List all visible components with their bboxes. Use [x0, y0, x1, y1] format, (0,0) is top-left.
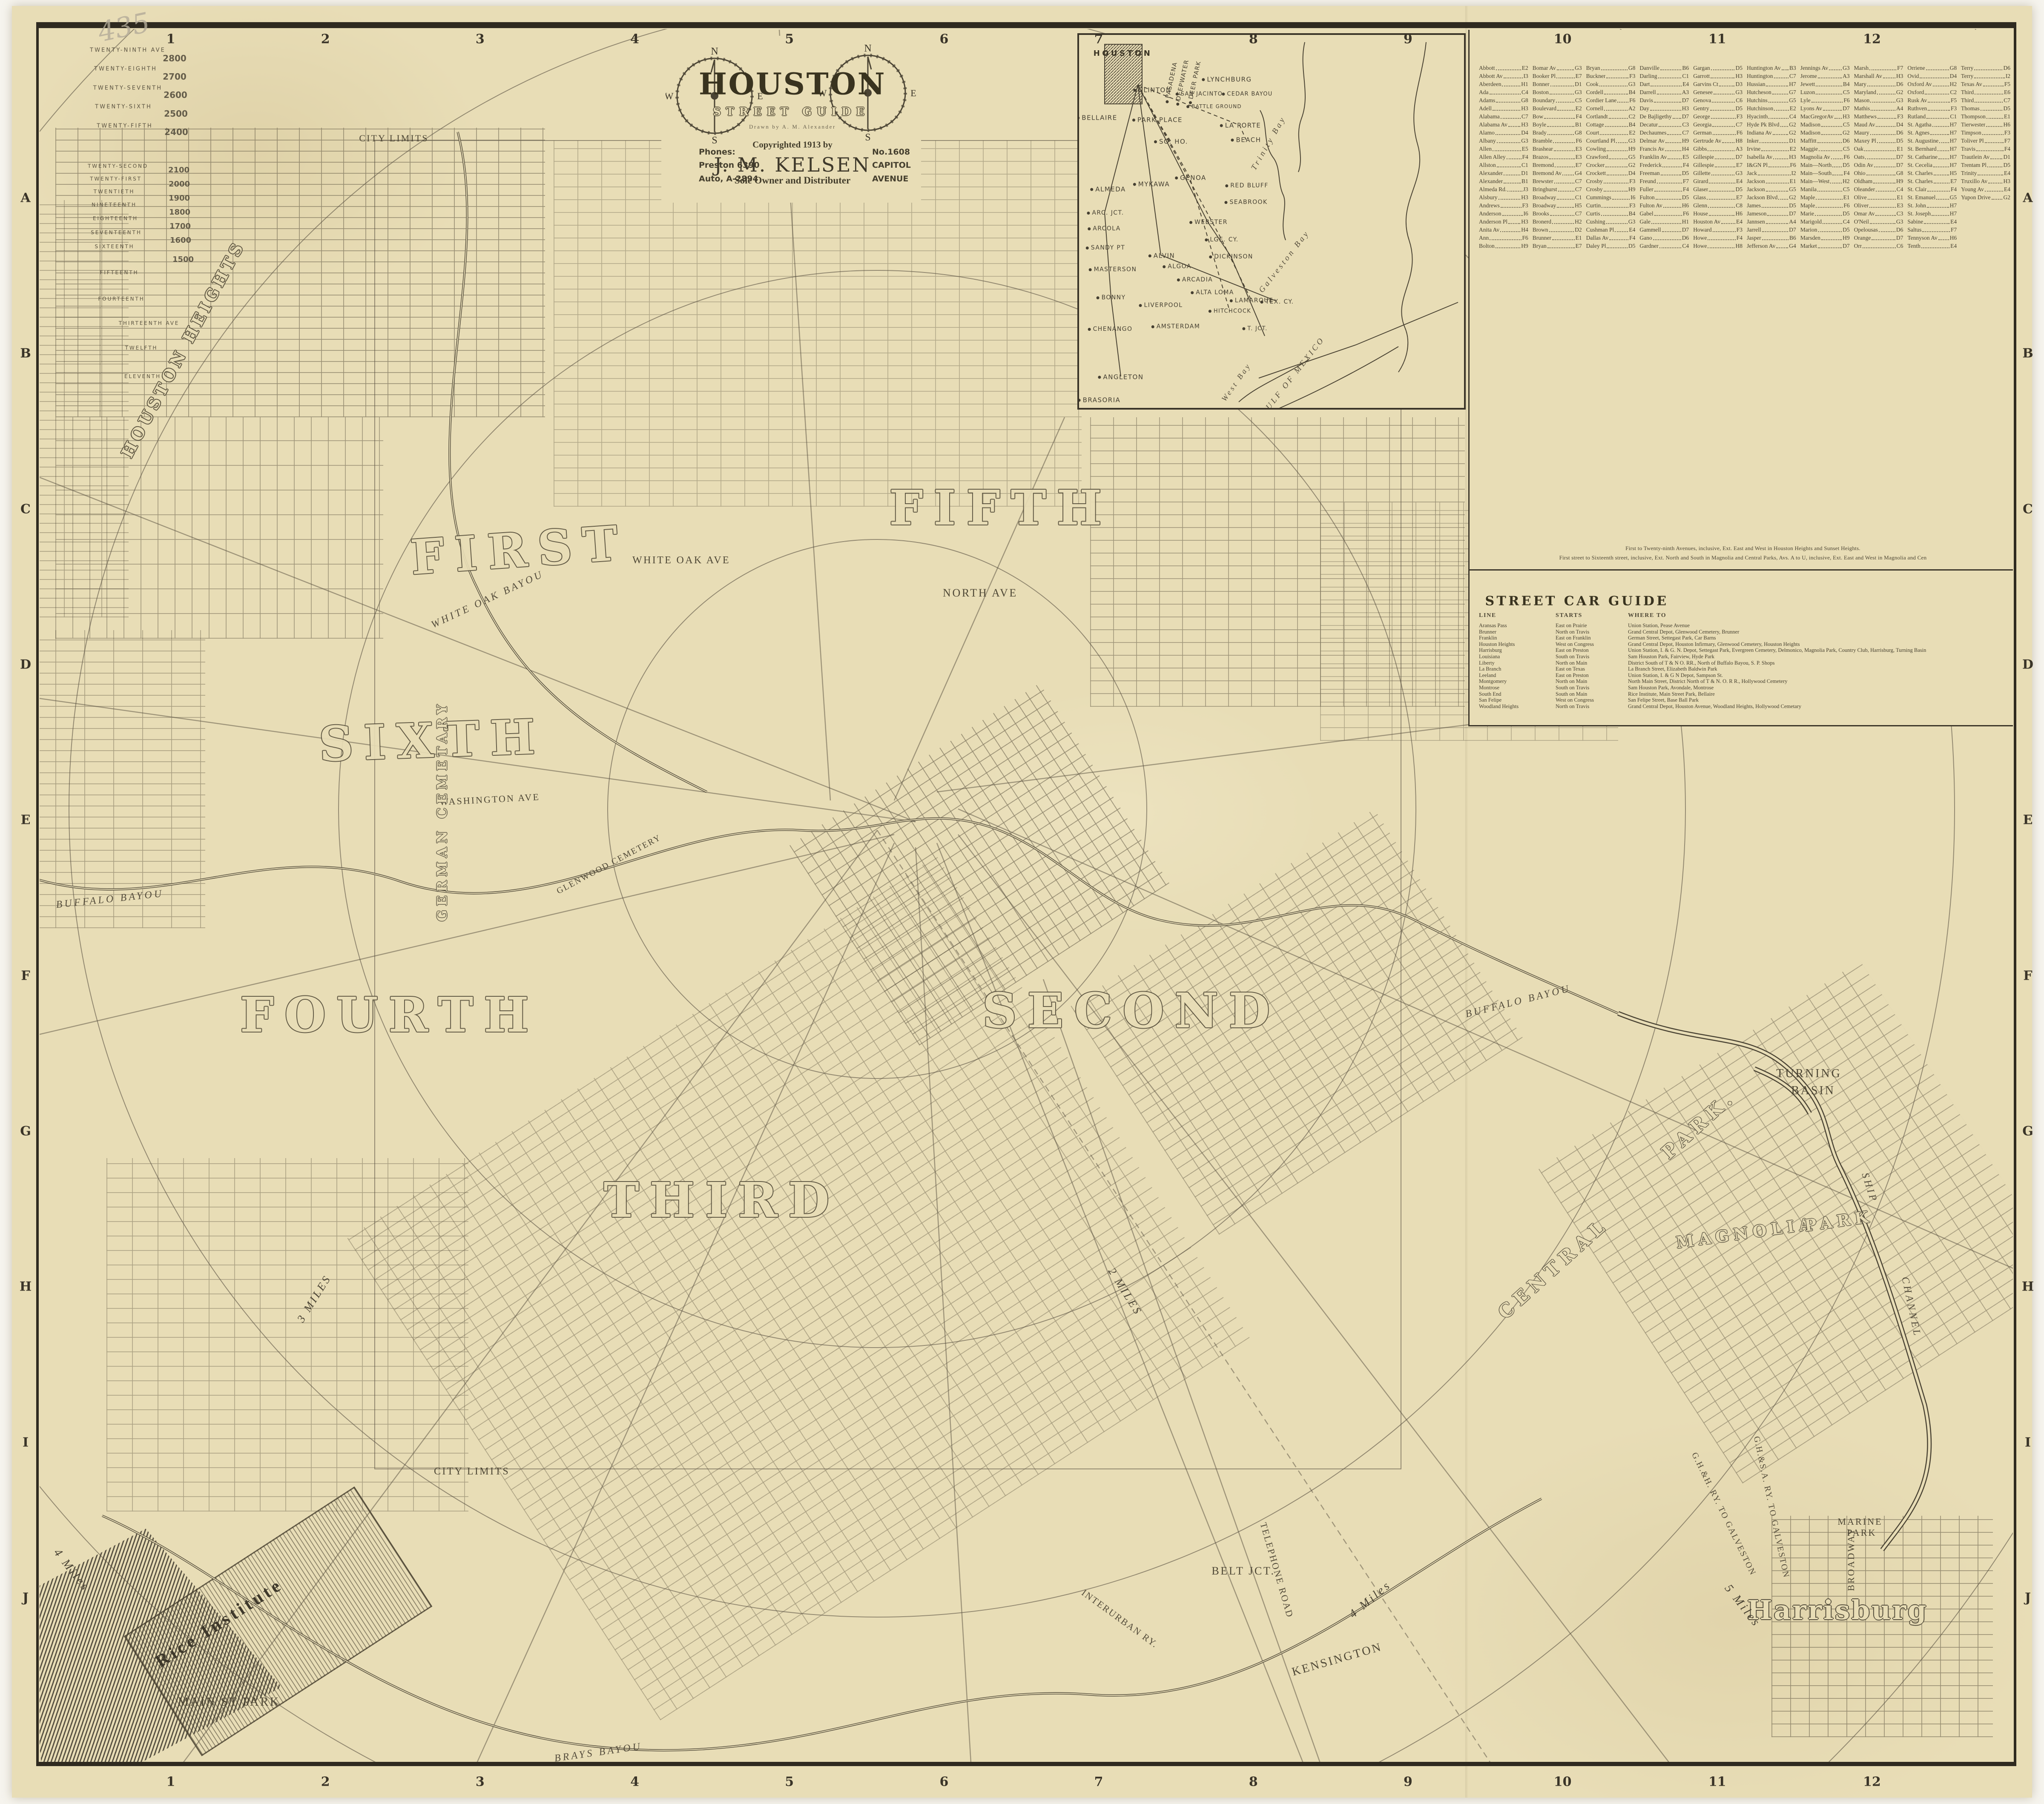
index-grid-ref: G8: [1521, 96, 1528, 104]
index-grid-ref: B6: [1789, 234, 1796, 242]
grid-row-label: I: [23, 1435, 29, 1450]
index-entry: CummingsI6: [1586, 193, 1636, 201]
map-label: MARINE: [1837, 1517, 1882, 1526]
block-number: 2100: [168, 166, 189, 174]
index-entry: Cordier LaneF6: [1586, 96, 1636, 104]
leader-dots: [1938, 239, 1949, 240]
leader-dots: [1927, 191, 1950, 192]
leader-dots: [1877, 118, 1896, 119]
leader-dots: [1550, 94, 1574, 95]
leader-dots: [1496, 69, 1521, 70]
index-street-name: Saltus: [1907, 226, 1921, 234]
index-grid-ref: D5: [1843, 209, 1850, 218]
index-grid-ref: F6: [1790, 161, 1796, 169]
index-street-name: Glass: [1693, 193, 1706, 201]
index-entry: HutchesonG7: [1747, 88, 1796, 96]
index-entry: BrewsterC7: [1533, 177, 1582, 185]
leader-dots: [1554, 183, 1574, 184]
leader-dots: [1934, 175, 1949, 175]
index-grid-ref: F4: [1683, 161, 1689, 169]
leader-dots: [1925, 94, 1949, 95]
carguide-whereto: Grand Central Depot, Houston Avenue, Woo…: [1628, 703, 2011, 710]
leader-dots: [1599, 86, 1628, 86]
leader-dots: [1604, 183, 1629, 184]
map-label: BROADWAY: [1846, 1527, 1856, 1591]
inset-town-label: ANGLETON: [1098, 374, 1143, 381]
leader-dots: [1830, 183, 1842, 184]
index-street-name: Oleander: [1854, 185, 1875, 193]
leader-dots: [1553, 142, 1575, 143]
index-street-name: Main—North: [1800, 161, 1832, 169]
index-street-name: Maud Av: [1854, 120, 1875, 129]
index-entry: Rusk AvF5: [1907, 96, 1957, 104]
index-street-name: Ruthven: [1907, 104, 1927, 112]
index-entry: BryanE7: [1533, 242, 1582, 250]
leader-dots: [1933, 86, 1949, 86]
index-street-name: Timpson: [1961, 129, 1981, 137]
inset-town-label: ARCOLA: [1088, 226, 1121, 232]
grid-row-label: G: [20, 1124, 31, 1139]
index-street-name: Darrell: [1639, 88, 1656, 96]
leader-dots: [1874, 166, 1895, 167]
index-entry: MaggieC5: [1800, 145, 1850, 153]
index-entry: Maud AvD4: [1854, 120, 1903, 129]
carguide-row: Houston HeightsWest on CongressGrand Cen…: [1479, 641, 2011, 648]
index-street-name: Opelousas: [1854, 226, 1878, 234]
leader-dots: [1552, 239, 1575, 240]
block-number: 2700: [163, 72, 187, 81]
leader-dots: [1557, 199, 1574, 200]
index-street-name: Courtland Pl: [1586, 137, 1616, 145]
index-entry: Toliver PlF7: [1961, 137, 2010, 145]
leader-dots: [1501, 207, 1522, 208]
index-street-name: House: [1693, 209, 1708, 218]
index-grid-ref: G5: [1789, 96, 1796, 104]
index-grid-ref: G3: [1521, 137, 1528, 145]
street-car-guide-header: LINE STARTS WHERE TO: [1479, 612, 2007, 619]
index-grid-ref: G3: [1628, 80, 1636, 88]
index-grid-ref: H7: [1950, 129, 1957, 137]
index-grid-ref: D4: [1628, 169, 1636, 177]
leader-dots: [1497, 166, 1521, 167]
index-street-name: I&GN Pl: [1747, 161, 1768, 169]
index-entry: St. JohnH7: [1907, 201, 1957, 209]
index-street-name: Tenth: [1907, 242, 1921, 250]
header-whereto: WHERE TO: [1628, 612, 2007, 619]
index-street-name: Bremond Av: [1533, 169, 1562, 177]
inset-town-label: T. JCT.: [1242, 326, 1267, 332]
index-grid-ref: C7: [1575, 209, 1582, 218]
grid-column-label: 11: [1708, 1775, 1726, 1790]
index-entry: GabelF6: [1639, 209, 1689, 218]
index-entry: Abbott AvI3: [1479, 72, 1528, 80]
index-street-name: St. Clair: [1907, 185, 1926, 193]
index-street-name: Trinity: [1961, 169, 1977, 177]
index-street-name: Adams: [1479, 96, 1495, 104]
leader-dots: [1657, 183, 1682, 184]
index-entry: De BajligethyD7: [1639, 112, 1689, 120]
street-car-guide-panel: STREET CAR GUIDE LINE STARTS WHERE TO Ar…: [1468, 571, 2015, 726]
index-grid-ref: G8: [1575, 129, 1582, 137]
index-street-name: Irvine: [1747, 145, 1760, 153]
index-street-name: Crockett: [1586, 169, 1606, 177]
leader-dots: [1549, 231, 1574, 232]
leader-dots: [1549, 158, 1574, 159]
leader-dots: [1762, 239, 1788, 240]
leader-dots: [1504, 77, 1523, 78]
carguide-whereto: San Felipe Street, Base Ball Park: [1628, 697, 2011, 703]
index-grid-ref: F6: [1683, 209, 1689, 218]
index-entry: BucknerF3: [1586, 72, 1636, 80]
leader-dots: [1780, 126, 1788, 127]
index-street-name: Brown: [1533, 226, 1548, 234]
leader-dots: [1605, 126, 1628, 127]
index-street-name: Jackson: [1747, 185, 1765, 193]
main-map: FIRSTFIFTHSIXTHFOURTHSECONDTHIRDHOUSTON …: [0, 0, 2044, 1804]
index-street-name: Texas Av: [1961, 80, 1982, 88]
index-street-name: Main—South: [1800, 169, 1832, 177]
index-grid-ref: F6: [1629, 96, 1635, 104]
index-entry: BoundaryC5: [1533, 96, 1582, 104]
index-entry: Odin AvD7: [1854, 161, 1903, 169]
index-entry: Jackson BlvdG2: [1747, 193, 1796, 201]
inset-town-label: ALGOA: [1163, 264, 1191, 270]
leader-dots: [1865, 158, 1895, 159]
index-grid-ref: D5: [1682, 169, 1689, 177]
leader-dots: [1932, 215, 1949, 216]
index-grid-ref: E3: [1897, 201, 1903, 209]
inset-town-label: DICKINSON: [1209, 254, 1253, 260]
carguide-starts: South on Main: [1556, 691, 1628, 697]
index-grid-ref: G3: [1735, 88, 1743, 96]
index-street-name: Freeman: [1639, 169, 1659, 177]
block-number: 1700: [169, 223, 191, 230]
index-entry: DanvilleB6: [1639, 64, 1689, 72]
leader-dots: [1556, 102, 1574, 103]
index-grid-ref: C7: [2004, 96, 2010, 104]
leader-dots: [1555, 166, 1575, 167]
copyright-line: Copyrighted 1913 by: [752, 140, 833, 150]
leader-dots: [1986, 126, 2002, 127]
leader-dots: [1544, 118, 1575, 119]
index-grid-ref: G3: [1628, 218, 1636, 226]
index-grid-ref: D5: [1789, 201, 1796, 209]
index-grid-ref: D5: [1735, 64, 1743, 72]
index-grid-ref: G2: [1789, 129, 1796, 137]
index-entry: HoweH8: [1693, 242, 1743, 250]
leader-dots: [1604, 94, 1628, 95]
index-street-name: Hutcheson: [1747, 88, 1771, 96]
index-street-name: Gale: [1639, 218, 1650, 226]
carguide-line: La Branch: [1479, 666, 1556, 672]
index-grid-ref: C7: [1522, 112, 1528, 120]
index-grid-ref: F4: [1843, 169, 1849, 177]
index-grid-ref: C7: [1736, 120, 1743, 129]
grid-row-label: E: [21, 813, 31, 828]
index-street-name: Mary: [1854, 80, 1866, 88]
index-entry: CourtE2: [1586, 129, 1636, 137]
index-grid-ref: C5: [1843, 88, 1850, 96]
index-street-name: Boyle: [1533, 120, 1546, 129]
index-entry: MarshF7: [1854, 64, 1903, 72]
index-entry: Lyons AvD7: [1800, 104, 1850, 112]
leader-dots: [1834, 118, 1842, 119]
leader-dots: [1758, 175, 1791, 175]
index-grid-ref: B4: [1843, 80, 1850, 88]
index-grid-ref: C3: [1897, 209, 1903, 218]
block-number: 2500: [164, 109, 188, 118]
index-entry: TrinityE4: [1961, 169, 2010, 177]
carguide-starts: North on Main: [1556, 660, 1628, 666]
index-grid-ref: C6: [1736, 96, 1743, 104]
carguide-line: Franklin: [1479, 635, 1556, 641]
index-grid-ref: C4: [1789, 112, 1796, 120]
grid-column-label: 1: [167, 1775, 175, 1790]
index-entry: JarrellD7: [1747, 226, 1796, 234]
carguide-whereto: La Branch Street, Elizabeth Baldwin Park: [1628, 666, 2011, 672]
index-entry: OliverE3: [1854, 201, 1903, 209]
index-grid-ref: E4: [1950, 218, 1957, 226]
leader-dots: [1550, 86, 1574, 86]
index-grid-ref: G2: [1789, 120, 1796, 129]
leader-dots: [1870, 223, 1895, 224]
index-street-name: Olive: [1854, 193, 1867, 201]
index-grid-ref: G3: [1575, 88, 1582, 96]
avenue-label: SEVENTEENTH: [91, 230, 141, 235]
leader-dots: [1920, 77, 1949, 78]
index-street-name: Luzon: [1800, 88, 1815, 96]
avenue-label: NINETEENTH: [92, 202, 137, 207]
index-street-name: Sabine: [1907, 218, 1923, 226]
index-grid-ref: D5: [2003, 104, 2010, 112]
index-street-name: Maffitt: [1800, 137, 1817, 145]
index-grid-ref: H7: [1950, 209, 1957, 218]
index-entry: TierwesterH6: [1961, 120, 2010, 129]
leader-dots: [1928, 102, 1950, 103]
index-entry: St. BernhardH7: [1907, 145, 1957, 153]
leader-dots: [1607, 175, 1628, 175]
index-grid-ref: E5: [1522, 145, 1528, 153]
index-street-name: Garvins Ct: [1693, 80, 1718, 88]
index-entry: AlexanderD1: [1479, 169, 1528, 177]
leader-dots: [1983, 86, 2004, 86]
carguide-whereto: Rice Institute, Main Street Park, Bellai…: [1628, 691, 2011, 697]
carguide-whereto: Union Station, I. & G N Depot, Sampson S…: [1628, 672, 2011, 679]
index-grid-ref: D6: [1896, 80, 1903, 88]
index-grid-ref: D7: [1682, 112, 1689, 120]
index-entry: BonnerD1: [1533, 80, 1582, 88]
leader-dots: [1607, 247, 1627, 248]
grid-column-label: 12: [1863, 32, 1881, 47]
inset-town-label: ALVIN: [1148, 253, 1175, 259]
leader-dots: [1815, 215, 1842, 216]
index-grid-ref: H3: [1521, 104, 1528, 112]
index-entry: Omar AvC3: [1854, 209, 1903, 218]
leader-dots: [1863, 247, 1895, 248]
index-entry: Houston AvE4: [1693, 218, 1743, 226]
index-street-name: Oats: [1854, 153, 1865, 161]
index-street-name: Dart: [1639, 80, 1650, 88]
leader-dots: [1870, 102, 1895, 103]
leader-dots: [1490, 94, 1521, 95]
index-grid-ref: B1: [1522, 177, 1528, 185]
leader-dots: [1504, 183, 1521, 184]
leader-dots: [1709, 191, 1734, 192]
index-grid-ref: C1: [1682, 72, 1689, 80]
index-grid-ref: H3: [1789, 153, 1796, 161]
index-street-name: Dechaumes: [1639, 129, 1666, 137]
leader-dots: [1871, 110, 1895, 111]
index-grid-ref: H9: [1628, 185, 1636, 193]
index-entry: Bremond AvG4: [1533, 169, 1582, 177]
leader-dots: [1829, 69, 1842, 70]
index-grid-ref: H7: [1950, 201, 1957, 209]
grid-column-label: 11: [1708, 32, 1726, 47]
leader-dots: [1821, 239, 1842, 240]
index-grid-ref: H7: [1950, 153, 1957, 161]
index-grid-ref: G2: [1628, 161, 1636, 169]
index-street-name: Crocker: [1586, 161, 1605, 169]
index-street-name: St. Augustine: [1907, 137, 1938, 145]
leader-dots: [1933, 166, 1949, 167]
index-entry: AndersonI6: [1479, 209, 1528, 218]
leader-dots: [1496, 102, 1520, 103]
index-entry: BoyleB1: [1533, 120, 1582, 129]
index-grid-ref: H7: [1950, 161, 1957, 169]
leader-dots: [1709, 183, 1735, 184]
index-entry: AlamoD4: [1479, 129, 1528, 137]
index-street-name: Girard: [1693, 177, 1708, 185]
index-entry: OleanderC4: [1854, 185, 1903, 193]
index-grid-ref: F6: [1843, 96, 1849, 104]
leader-dots: [1768, 118, 1788, 119]
index-grid-ref: D7: [1896, 161, 1903, 169]
index-street-name: Georgia: [1693, 120, 1711, 129]
inset-regional-map: HOUSTONCLINTONPASADENADEEPWATERDEER PARK…: [1077, 33, 1466, 410]
index-street-name: Francis Av: [1639, 145, 1664, 153]
index-entry: HutchinsG5: [1747, 96, 1796, 104]
leader-dots: [1938, 150, 1949, 151]
inset-town-label: ARCADIA: [1177, 277, 1213, 283]
index-entry: AllstonC1: [1479, 161, 1528, 169]
index-entry: Anderson PlH3: [1479, 218, 1528, 226]
grid-column-label: 7: [1094, 1775, 1103, 1790]
leader-dots: [1665, 142, 1681, 143]
index-street-name: Franklin Av: [1639, 153, 1667, 161]
carguide-line: Montrose: [1479, 685, 1556, 691]
index-entry: MacGregorAvH3: [1800, 112, 1850, 120]
leader-dots: [1872, 239, 1895, 240]
carguide-row: MontgomeryNorth on MainNorth Main Street…: [1479, 678, 2011, 685]
index-street-name: Gammell: [1639, 226, 1661, 234]
avenue-label: TWENTY-EIGHTH: [94, 66, 157, 72]
street-index-columns: AbbottE2Abbott AvI3AberdeenH1AdaC4AdamsG…: [1479, 64, 2010, 250]
index-grid-ref: D7: [1789, 209, 1796, 218]
grid-row-label: C: [2023, 502, 2033, 516]
index-street-name: Cornell: [1586, 104, 1604, 112]
avenue-label: EIGHTEENTH: [93, 216, 138, 221]
leader-dots: [1557, 207, 1574, 208]
index-entry: RutlandC1: [1907, 112, 1957, 120]
leader-dots: [1869, 69, 1896, 70]
map-label: CITY LIMITS: [434, 1466, 510, 1477]
index-entry: JewettB4: [1800, 80, 1850, 88]
index-grid-ref: F5: [2004, 80, 2010, 88]
leader-dots: [1658, 77, 1682, 78]
index-grid-ref: C7: [1575, 185, 1582, 193]
leader-dots: [1654, 215, 1682, 216]
index-entry: DecaturC3: [1639, 120, 1689, 129]
index-street-name: Gibbs: [1693, 145, 1707, 153]
address-number: No.1608: [872, 146, 911, 159]
index-entry: TravisF4: [1961, 145, 2010, 153]
grid-column-label: 9: [1404, 32, 1412, 47]
leader-dots: [1811, 102, 1843, 103]
carguide-line: Montgomery: [1479, 678, 1556, 685]
index-grid-ref: E1: [1897, 193, 1903, 201]
map-label: NORTH AVE: [943, 588, 1018, 599]
index-street-name: Genova: [1693, 96, 1711, 104]
index-entry: HussianH7: [1747, 80, 1796, 88]
index-entry: St. CharlesH5: [1907, 169, 1957, 177]
index-entry: Delmar AvH9: [1639, 137, 1689, 145]
index-entry: CrosbyH9: [1586, 185, 1636, 193]
index-street-name: Orr: [1854, 242, 1862, 250]
leader-dots: [1821, 126, 1842, 127]
address-block: No.1608 CAPITOL AVENUE: [872, 146, 911, 186]
ward-label: SECOND: [982, 987, 1280, 1035]
index-entry: HutchinsonE2: [1747, 104, 1796, 112]
leader-dots: [1823, 110, 1842, 111]
index-street-name: Huntington: [1747, 72, 1773, 80]
leader-dots: [1661, 175, 1681, 175]
index-grid-ref: E1: [1790, 177, 1796, 185]
index-street-name: Brady: [1533, 129, 1547, 137]
index-grid-ref: D6: [1896, 129, 1903, 137]
avenue-label: ELEVENTH: [124, 374, 161, 379]
leader-dots: [1816, 94, 1842, 95]
leader-dots: [1832, 166, 1842, 167]
leader-dots: [1650, 110, 1681, 111]
index-street-name: St. Agatha: [1907, 120, 1931, 129]
index-grid-ref: G5: [1950, 193, 1957, 201]
index-entry: Fulton AvH6: [1639, 201, 1689, 209]
leader-dots: [1557, 110, 1575, 111]
avenue-label: TWENTY-NINTH AVE: [90, 48, 166, 53]
index-entry: St. AgathaH7: [1907, 120, 1957, 129]
leader-dots: [1721, 223, 1735, 224]
index-entry: FrederickF4: [1639, 161, 1689, 169]
avenue-label: SIXTEENTH: [95, 244, 135, 249]
inset-town-label: ARC. JCT.: [1087, 210, 1124, 216]
index-street-name: Orriene: [1907, 64, 1925, 72]
index-entry: Almeda Rd.J3: [1479, 185, 1528, 193]
grid-column-label: 5: [785, 1775, 794, 1790]
index-street-name: Howe: [1693, 242, 1707, 250]
index-grid-ref: F7: [2004, 137, 2010, 145]
grid-column-label: 1: [167, 32, 175, 47]
index-street-name: Marsden: [1800, 234, 1820, 242]
carguide-row: FranklinEast on FranklinGerman Street, S…: [1479, 635, 2011, 641]
index-entry: St. JosephH7: [1907, 209, 1957, 218]
inset-town-label: BONNY: [1097, 295, 1126, 301]
index-street-name: James: [1747, 201, 1761, 209]
leader-dots: [1507, 191, 1522, 192]
index-street-name: Cushman Pl: [1586, 226, 1614, 234]
index-grid-ref: D7: [1682, 96, 1689, 104]
index-entry: CowlingH9: [1586, 145, 1636, 153]
compass-w: W: [666, 91, 674, 101]
